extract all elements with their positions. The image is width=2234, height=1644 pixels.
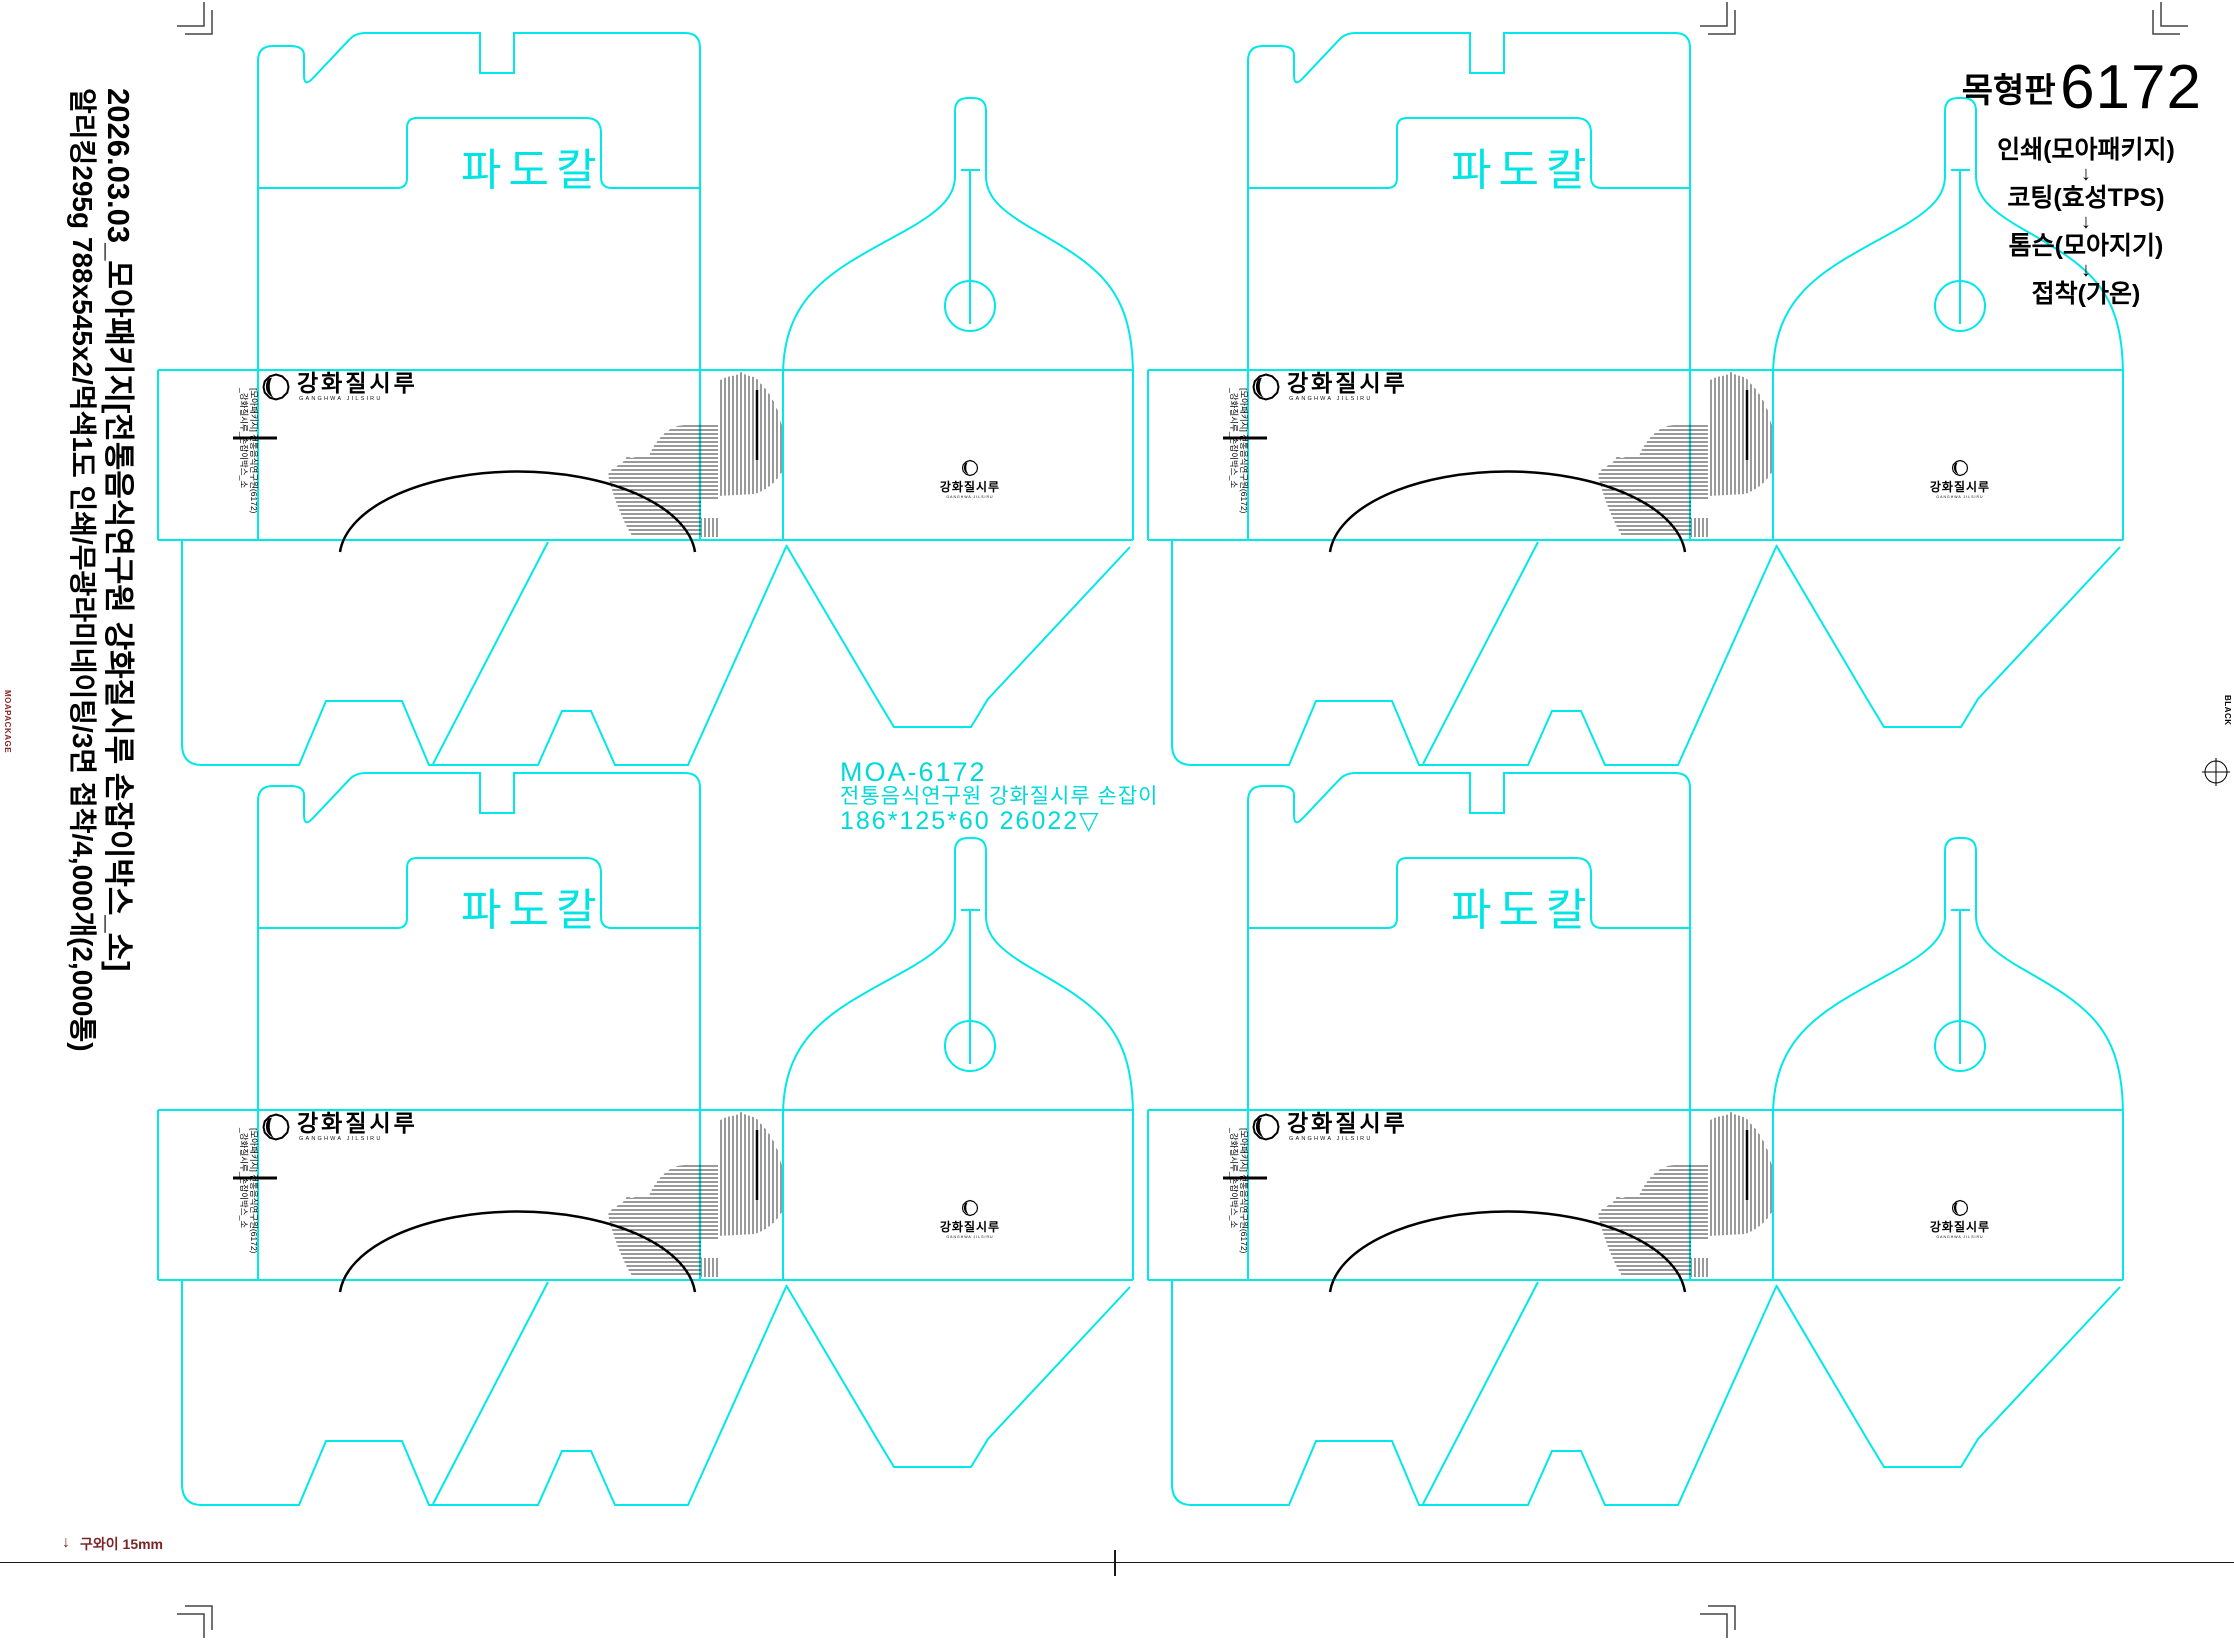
job-slug-text: [모아패키지] 전통음식연구원(6172) _강화질시루_손잡이박스_소 (239, 1128, 259, 1254)
dieline-unit-bottom-right: 파도칼 강화질시루 GANGHWA JILSIRU 강화질시루 GANGHWA … (1145, 768, 2125, 1513)
knife-label: 파도칼 (1451, 874, 1611, 938)
job-slug-text: [모아패키지] 전통음식연구원(6172) _강화질시루_손잡이박스_소 (1229, 388, 1249, 514)
plate-title: 목형판 6172 (1820, 52, 2202, 123)
job-note-line1: 2026.03.03_모아패키지[전통음식연구원 강화질시루 손잡이박스_소] (99, 88, 144, 971)
brand-name: 강화질시루 (297, 1112, 418, 1135)
corner-mark-icon (1700, 1604, 1736, 1638)
gripper-margin-label: 구와이 15mm (80, 1534, 163, 1554)
process-step-3: 톰슨(모아지기) (1970, 233, 2202, 260)
gripper-arrow-icon: ↓ (62, 1534, 70, 1552)
cad-job-code: MOA-6172 (840, 758, 1158, 786)
dieline-unit-top-left: 파도칼 강화질시루 GANGHWA JILSIRU 강화질시루 GANGHWA … (155, 28, 1135, 773)
corner-mark-icon (177, 1604, 213, 1638)
dieline-unit-bottom-left: 파도칼 강화질시루 GANGHWA JILSIRU 강화질시루 GANGHWA … (155, 768, 1135, 1513)
corner-mark-icon (2152, 2, 2188, 36)
process-step-1: 인쇄(모아패키지) (1970, 137, 2202, 164)
brand-name: 강화질시루 (1930, 1218, 1990, 1235)
brand-circle-icon (261, 372, 291, 402)
brand-logo-vertical: 강화질시루 GANGHWA JILSIRU (934, 1199, 1006, 1239)
brand-name: 강화질시루 (297, 372, 418, 395)
cad-job-client: 전통음식연구원 강화질시루 손잡이 (840, 786, 1158, 808)
brand-name: 강화질시루 (940, 478, 1000, 495)
brand-name-en: GANGHWA JILSIRU (1289, 397, 1408, 403)
brand-name-en: GANGHWA JILSIRU (1936, 1235, 1983, 1239)
brand-name: 강화질시루 (1287, 1112, 1408, 1135)
brand-name-en: GANGHWA JILSIRU (299, 397, 418, 403)
brand-name-en: GANGHWA JILSIRU (946, 1235, 993, 1239)
knife-label: 파도칼 (461, 134, 621, 198)
brand-name: 강화질시루 (940, 1218, 1000, 1235)
brand-logo-vertical: 강화질시루 GANGHWA JILSIRU (1924, 1199, 1996, 1239)
brand-name-en: GANGHWA JILSIRU (1936, 495, 1983, 499)
job-note-line2: 알리킹295g 788x545x2/먹색1도 인쇄/무광라미네이팅/3면 접착/… (64, 88, 104, 1052)
black-separation-slug: BLACK (2223, 695, 2232, 726)
brand-logo-horizontal: 강화질시루 GANGHWA JILSIRU (261, 1112, 418, 1143)
brand-circle-icon (261, 1112, 291, 1142)
brand-logo-vertical: 강화질시루 GANGHWA JILSIRU (1924, 459, 1996, 499)
brand-logo-vertical: 강화질시루 GANGHWA JILSIRU (934, 459, 1006, 499)
brand-circle-icon (1251, 1112, 1281, 1142)
knife-label: 파도칼 (461, 874, 621, 938)
process-step-2: 코팅(효성TPS) (1970, 185, 2202, 212)
process-step-4: 접착(가온) (1970, 281, 2202, 308)
sheet-edge-line (0, 1562, 2234, 1563)
plate-title-label: 목형판 (1962, 72, 2056, 110)
knife-label: 파도칼 (1451, 134, 1611, 198)
brand-logo-horizontal: 강화질시루 GANGHWA JILSIRU (261, 372, 418, 403)
job-slug-text: [모아패키지] 전통음식연구원(6172) _강화질시루_손잡이박스_소 (239, 388, 259, 514)
cad-job-label: MOA-6172 전통음식연구원 강화질시루 손잡이 186*125*60 26… (840, 758, 1158, 834)
sheet-edge-tick (1114, 1550, 1116, 1576)
corner-mark-icon (1700, 2, 1736, 36)
brand-circle-icon (1251, 372, 1281, 402)
plate-header: 목형판 6172 인쇄(모아패키지) ↓ 코팅(효성TPS) ↓ 톰슨(모아지기… (1820, 52, 2202, 308)
brand-name: 강화질시루 (1930, 478, 1990, 495)
process-flow: 인쇄(모아패키지) ↓ 코팅(효성TPS) ↓ 톰슨(모아지기) ↓ 접착(가온… (1820, 137, 2202, 308)
brand-circle-icon (961, 459, 979, 477)
brand-logo-horizontal: 강화질시루 GANGHWA JILSIRU (1251, 372, 1408, 403)
registration-target-icon (2202, 758, 2230, 786)
brand-name-en: GANGHWA JILSIRU (299, 1137, 418, 1143)
corner-mark-icon (177, 2, 213, 36)
down-arrow-icon: ↓ (1970, 212, 2202, 233)
plate-number: 6172 (2060, 53, 2202, 122)
dieline-sheet: 파도칼 강화질시루 GANGHWA JILSIRU 강화질시루 GANGHWA … (0, 0, 2234, 1644)
down-arrow-icon: ↓ (1970, 260, 2202, 281)
brand-name-en: GANGHWA JILSIRU (1289, 1137, 1408, 1143)
down-arrow-icon: ↓ (1970, 164, 2202, 185)
brand-name-en: GANGHWA JILSIRU (946, 495, 993, 499)
brand-logo-horizontal: 강화질시루 GANGHWA JILSIRU (1251, 1112, 1408, 1143)
brand-circle-icon (961, 1199, 979, 1217)
brand-circle-icon (1951, 1199, 1969, 1217)
cad-job-dimensions: 186*125*60 26022▽ (840, 808, 1158, 834)
job-slug-text: [모아패키지] 전통음식연구원(6172) _강화질시루_손잡이박스_소 (1229, 1128, 1249, 1254)
brand-name: 강화질시루 (1287, 372, 1408, 395)
left-edge-slug: MOAPACKAGE (3, 690, 12, 753)
brand-circle-icon (1951, 459, 1969, 477)
